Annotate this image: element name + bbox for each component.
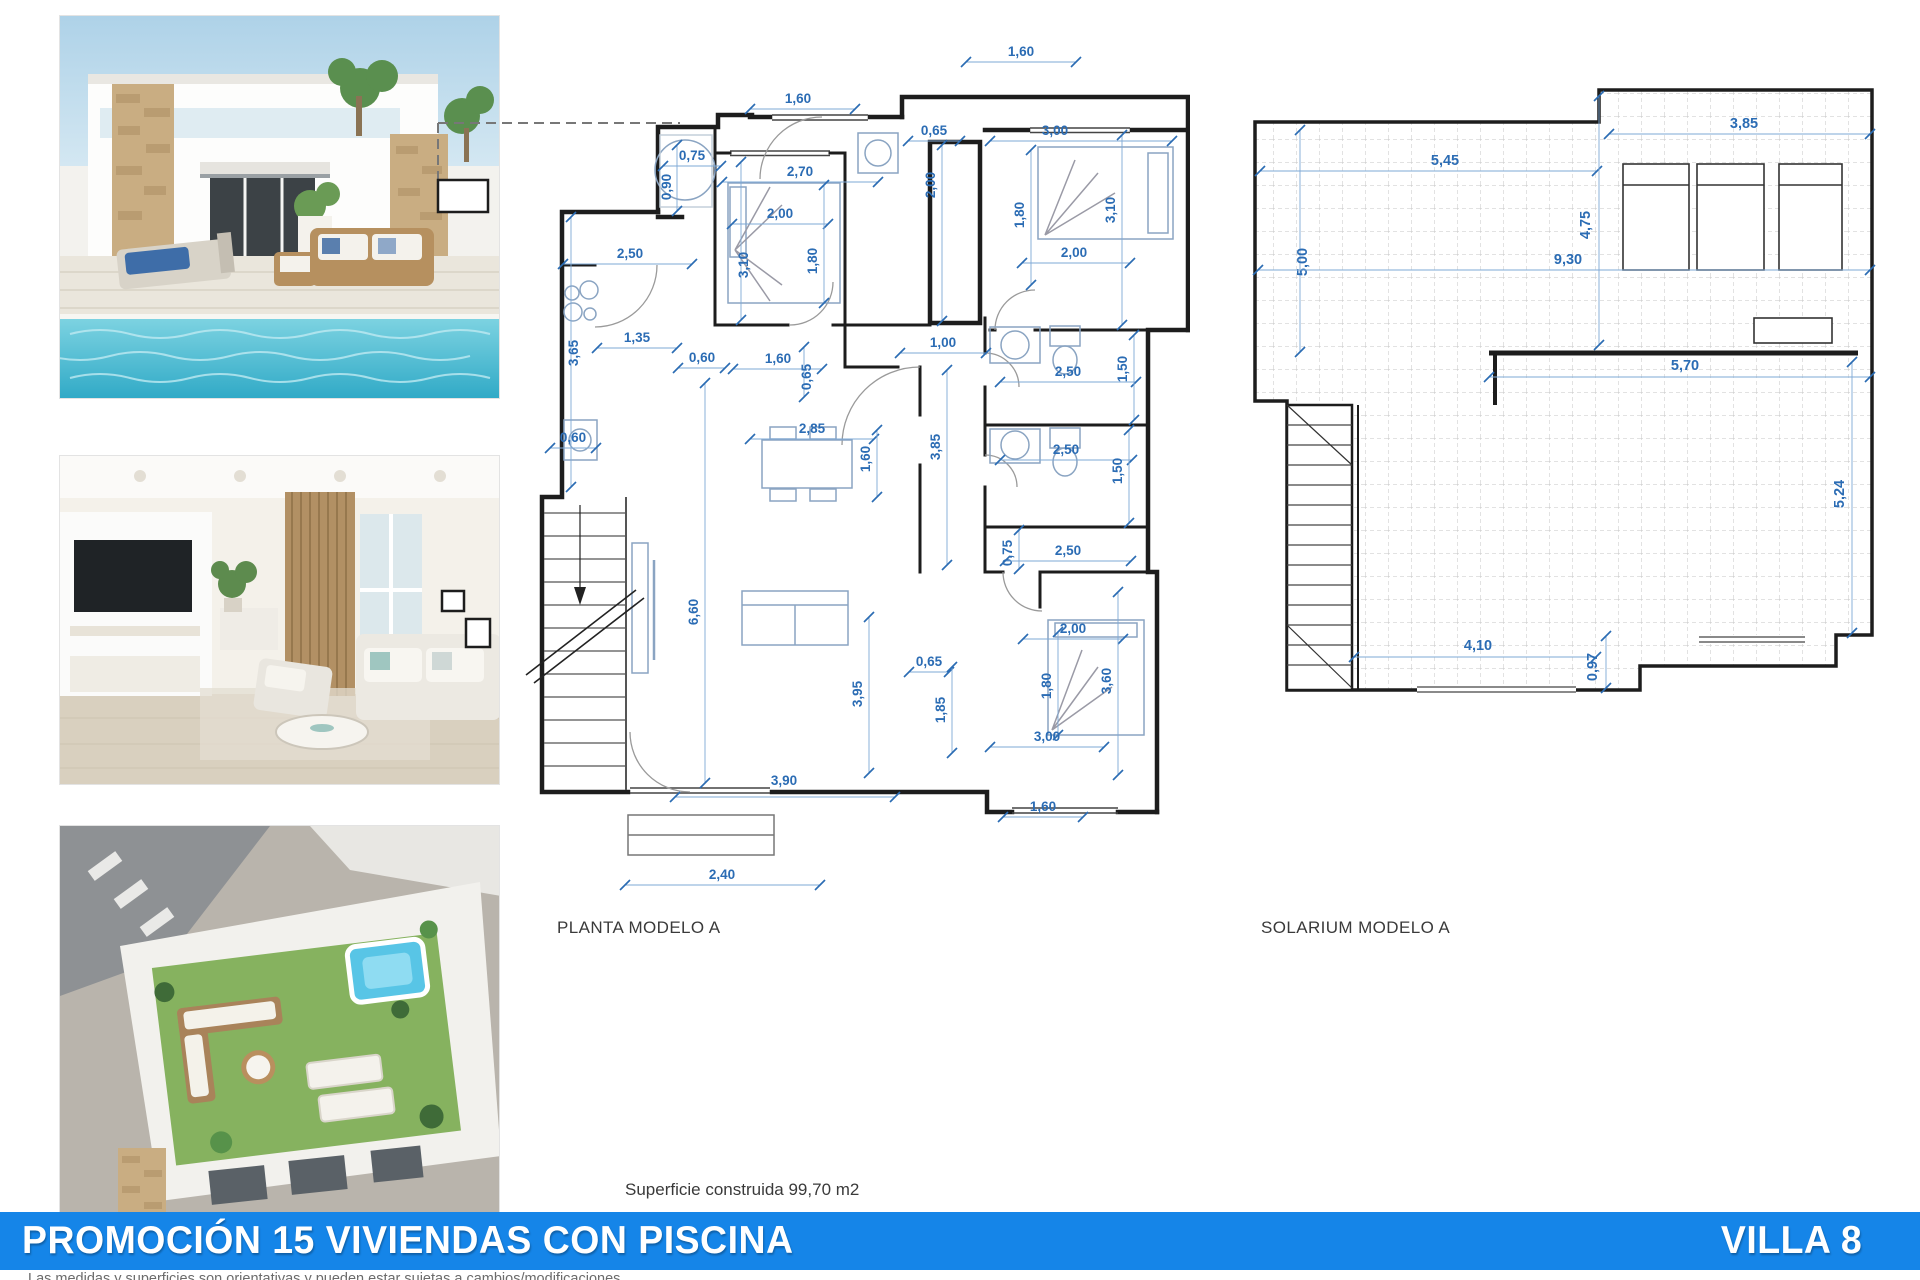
svg-text:4,10: 4,10 <box>1464 638 1492 654</box>
svg-text:2,00: 2,00 <box>1060 621 1086 636</box>
svg-text:0,65: 0,65 <box>916 654 943 669</box>
svg-text:0,65: 0,65 <box>921 123 948 138</box>
svg-text:5,00: 5,00 <box>1295 248 1311 276</box>
svg-text:9,30: 9,30 <box>1554 252 1582 268</box>
footer-banner: PROMOCIÓN 15 VIVIENDAS CON PISCINA VILLA… <box>0 1212 1920 1270</box>
villa-number: VILLA 8 <box>1721 1219 1862 1263</box>
svg-text:1,60: 1,60 <box>1030 799 1056 814</box>
svg-text:0,65: 0,65 <box>799 363 814 390</box>
svg-text:2,70: 2,70 <box>787 164 813 179</box>
svg-text:1,85: 1,85 <box>933 696 948 723</box>
solarium-stairs <box>1287 405 1358 690</box>
svg-text:2,00: 2,00 <box>1061 245 1087 260</box>
svg-text:3,85: 3,85 <box>928 433 943 460</box>
svg-text:1,60: 1,60 <box>785 91 811 106</box>
svg-text:5,70: 5,70 <box>1671 358 1699 374</box>
promotion-title: PROMOCIÓN 15 VIVIENDAS CON PISCINA <box>22 1219 793 1263</box>
svg-text:0,90: 0,90 <box>659 174 674 200</box>
svg-text:2,50: 2,50 <box>1053 442 1079 457</box>
roof-plan-solarium-modelo-a: 3,855,454,755,009,305,705,244,100,97 <box>1250 70 1890 710</box>
floor-plan-planta-modelo-a: 1,601,600,653,000,750,902,702,001,803,10… <box>430 35 1190 915</box>
planta-drawing: 1,601,600,653,000,750,902,702,001,803,10… <box>430 35 1190 915</box>
svg-text:2,00: 2,00 <box>767 206 793 221</box>
svg-text:0,60: 0,60 <box>560 430 586 445</box>
svg-text:3,90: 3,90 <box>771 773 797 788</box>
svg-text:5,45: 5,45 <box>1431 153 1459 169</box>
solarium-drawing: 3,855,454,755,009,305,705,244,100,97 <box>1250 70 1890 710</box>
sunbeds <box>1623 164 1842 270</box>
exterior-pillars <box>438 180 490 647</box>
svg-text:2,50: 2,50 <box>1055 543 1081 558</box>
brochure-page: 1,601,600,653,000,750,902,702,001,803,10… <box>0 0 1920 1280</box>
planta-plan-title: PLANTA MODELO A <box>557 918 720 938</box>
svg-text:3,65: 3,65 <box>566 339 581 366</box>
svg-text:2,40: 2,40 <box>709 867 735 882</box>
svg-text:1,50: 1,50 <box>1110 458 1125 484</box>
svg-text:3,60: 3,60 <box>1099 668 1114 694</box>
svg-text:3,85: 3,85 <box>1730 116 1758 132</box>
svg-text:2,00: 2,00 <box>923 172 938 198</box>
svg-text:1,00: 1,00 <box>930 335 956 350</box>
svg-text:1,50: 1,50 <box>1115 356 1130 382</box>
built-surface-note: Superficie construida 99,70 m2 <box>625 1180 859 1200</box>
svg-text:1,80: 1,80 <box>1012 202 1027 228</box>
svg-text:2,50: 2,50 <box>617 246 643 261</box>
svg-text:3,00: 3,00 <box>1042 123 1068 138</box>
solarium-table <box>1754 318 1832 343</box>
dimension-labels: 1,601,600,653,000,750,902,702,001,803,10… <box>545 44 1177 890</box>
svg-text:1,35: 1,35 <box>624 330 651 345</box>
svg-text:0,75: 0,75 <box>1000 539 1015 566</box>
svg-text:3,10: 3,10 <box>736 252 751 278</box>
svg-text:1,60: 1,60 <box>1008 44 1034 59</box>
svg-text:2,50: 2,50 <box>1055 364 1081 379</box>
svg-text:1,80: 1,80 <box>805 248 820 274</box>
svg-text:4,75: 4,75 <box>1578 211 1594 239</box>
svg-text:0,60: 0,60 <box>689 350 715 365</box>
svg-text:1,60: 1,60 <box>765 351 791 366</box>
svg-text:0,97: 0,97 <box>1585 653 1601 681</box>
svg-text:1,80: 1,80 <box>1039 673 1054 699</box>
svg-text:5,24: 5,24 <box>1832 480 1848 508</box>
svg-text:3,00: 3,00 <box>1034 729 1060 744</box>
svg-text:2,85: 2,85 <box>799 421 826 436</box>
svg-text:6,60: 6,60 <box>686 599 701 625</box>
solarium-plan-title: SOLARIUM MODELO A <box>1261 918 1450 938</box>
disclaimer-text: Las medidas y superficies son orientativ… <box>28 1271 620 1280</box>
svg-text:1,60: 1,60 <box>858 446 873 472</box>
svg-text:0,75: 0,75 <box>679 148 706 163</box>
svg-text:3,95: 3,95 <box>850 680 865 707</box>
svg-text:3,10: 3,10 <box>1103 197 1118 223</box>
